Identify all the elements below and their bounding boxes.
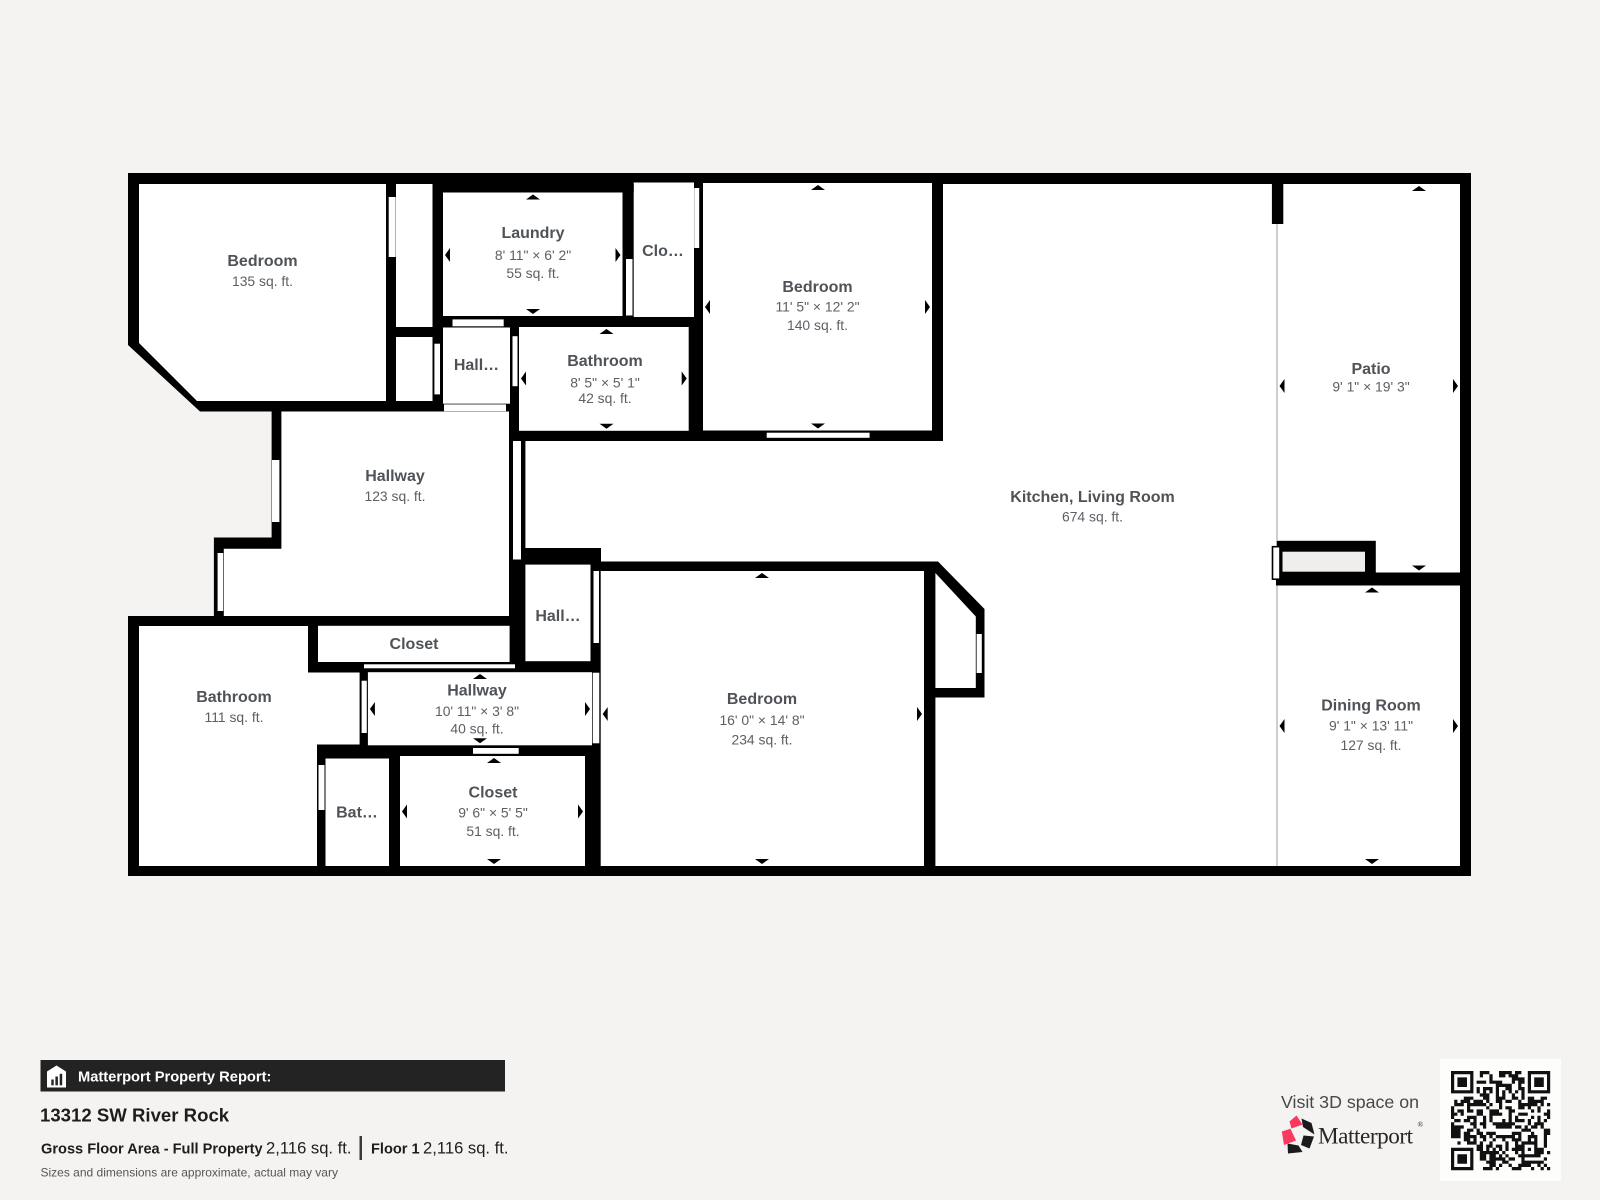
svg-text:Dining Room: Dining Room <box>1321 698 1421 715</box>
svg-text:234 sq. ft.: 234 sq. ft. <box>731 732 792 748</box>
svg-text:Laundry: Laundry <box>501 225 564 242</box>
svg-text:Sizes and dimensions are appro: Sizes and dimensions are approximate, ac… <box>41 1166 338 1180</box>
svg-text:16' 0" × 14' 8": 16' 0" × 14' 8" <box>719 712 804 728</box>
svg-text:®: ® <box>1418 1120 1424 1129</box>
svg-text:2,116 sq. ft.: 2,116 sq. ft. <box>266 1139 351 1158</box>
svg-text:51 sq. ft.: 51 sq. ft. <box>466 823 519 839</box>
svg-text:Patio: Patio <box>1351 361 1390 378</box>
svg-text:9' 6" × 5' 5": 9' 6" × 5' 5" <box>458 805 528 821</box>
svg-text:Bat…: Bat… <box>336 805 378 822</box>
svg-text:40 sq. ft.: 40 sq. ft. <box>450 721 503 737</box>
svg-text:8' 11" × 6' 2": 8' 11" × 6' 2" <box>495 247 571 263</box>
svg-text:Hallway: Hallway <box>365 468 425 485</box>
svg-text:13312 SW River Rock: 13312 SW River Rock <box>40 1105 230 1126</box>
svg-text:2,116 sq. ft.: 2,116 sq. ft. <box>423 1139 508 1158</box>
svg-text:Clo…: Clo… <box>642 243 684 260</box>
svg-text:Visit 3D space on: Visit 3D space on <box>1281 1092 1419 1112</box>
svg-text:11' 5" × 12' 2": 11' 5" × 12' 2" <box>775 299 859 315</box>
svg-text:9' 1" × 19' 3": 9' 1" × 19' 3" <box>1332 379 1409 395</box>
svg-text:9' 1" × 13' 11": 9' 1" × 13' 11" <box>1329 718 1413 734</box>
svg-text:674 sq. ft.: 674 sq. ft. <box>1062 509 1123 525</box>
svg-text:Kitchen, Living Room: Kitchen, Living Room <box>1010 489 1174 506</box>
svg-text:Hall…: Hall… <box>454 357 499 374</box>
svg-text:Floor 1: Floor 1 <box>371 1142 420 1158</box>
svg-text:Closet: Closet <box>469 785 519 802</box>
svg-text:Matterport: Matterport <box>1318 1124 1414 1150</box>
svg-text:111 sq. ft.: 111 sq. ft. <box>205 709 264 725</box>
svg-text:Hallway: Hallway <box>447 683 507 700</box>
svg-text:Gross Floor Area - Full Proper: Gross Floor Area - Full Property <box>41 1142 264 1158</box>
svg-text:10' 11" × 3' 8": 10' 11" × 3' 8" <box>435 703 519 719</box>
svg-text:Hall…: Hall… <box>535 608 580 625</box>
svg-text:140 sq. ft.: 140 sq. ft. <box>787 317 848 333</box>
svg-text:Bathroom: Bathroom <box>196 689 272 706</box>
svg-text:Matterport Property Report:: Matterport Property Report: <box>78 1070 271 1086</box>
svg-text:Bathroom: Bathroom <box>567 353 643 370</box>
svg-text:8' 5" × 5' 1": 8' 5" × 5' 1" <box>570 375 640 391</box>
svg-text:Bedroom: Bedroom <box>727 691 797 708</box>
svg-text:127 sq. ft.: 127 sq. ft. <box>1340 737 1401 753</box>
svg-text:Bedroom: Bedroom <box>227 253 297 270</box>
svg-text:42 sq. ft.: 42 sq. ft. <box>578 390 631 406</box>
svg-text:Bedroom: Bedroom <box>782 279 852 296</box>
svg-text:55 sq. ft.: 55 sq. ft. <box>506 265 559 281</box>
svg-text:135 sq. ft.: 135 sq. ft. <box>232 273 293 289</box>
svg-text:123 sq. ft.: 123 sq. ft. <box>364 488 425 504</box>
svg-text:Closet: Closet <box>390 636 440 653</box>
